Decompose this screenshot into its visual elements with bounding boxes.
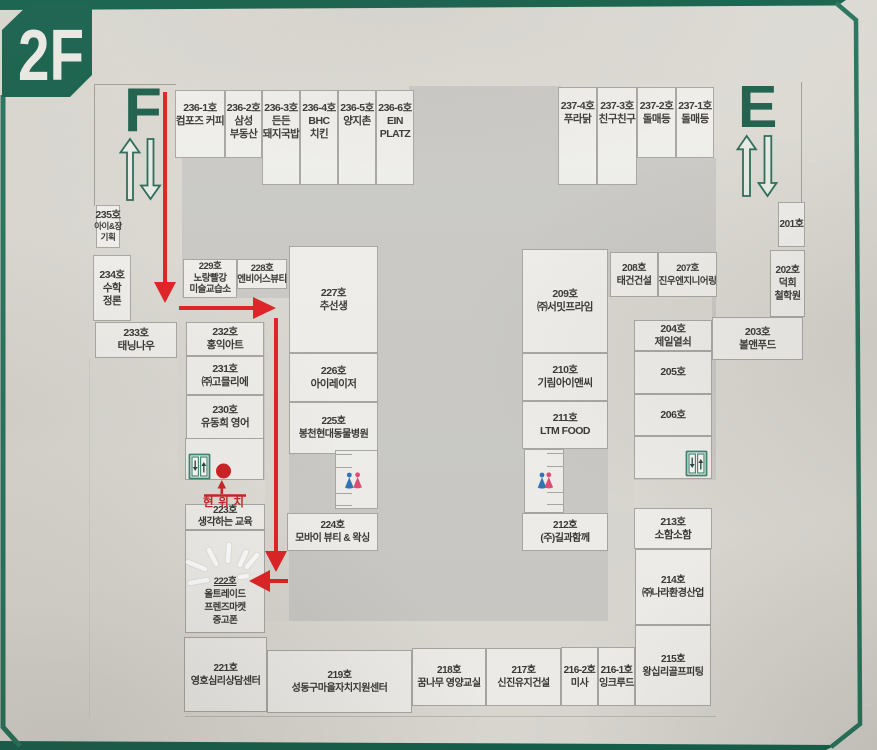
- svg-text:F: F: [124, 76, 162, 145]
- svg-text:2F: 2F: [18, 16, 84, 96]
- svg-text:E: E: [738, 74, 777, 140]
- svg-text:현위치: 현위치: [203, 495, 244, 509]
